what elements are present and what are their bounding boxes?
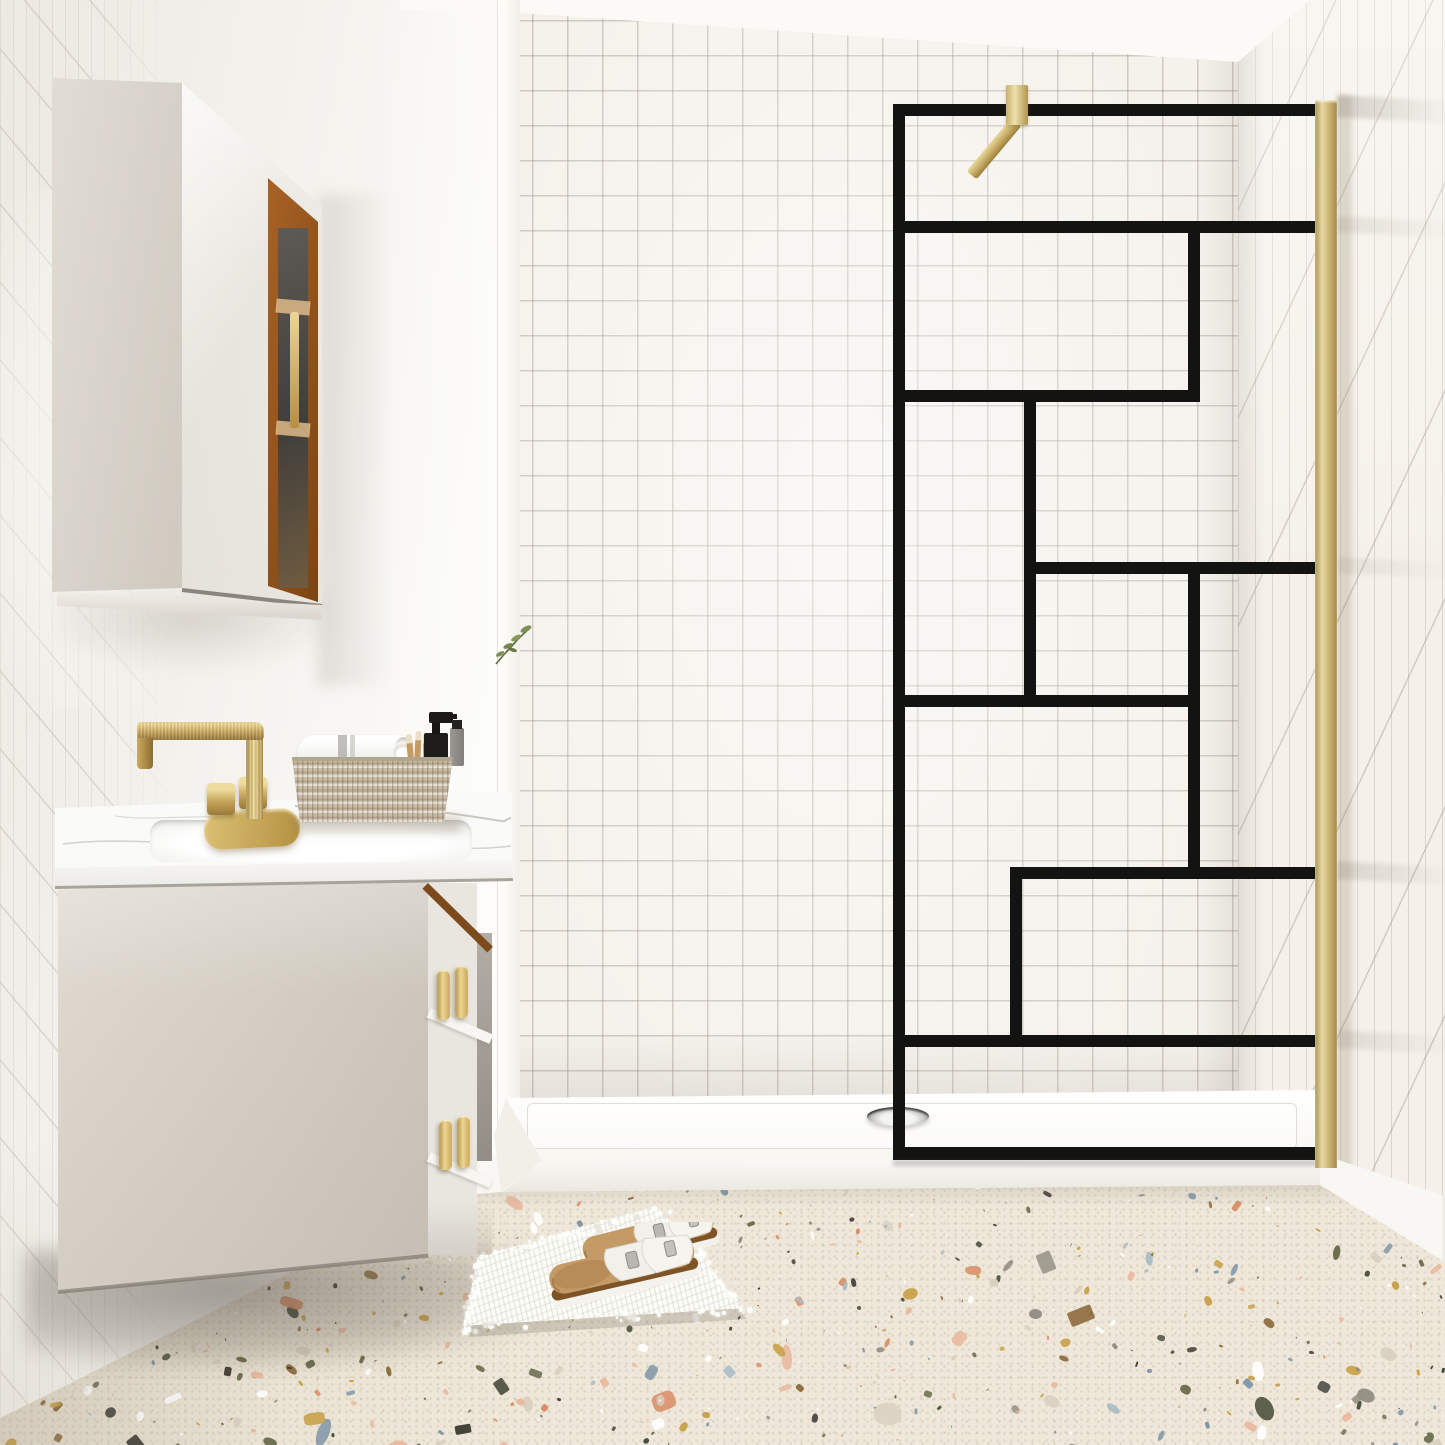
terrazzo-chip [1051, 1382, 1058, 1388]
terrazzo-chip [1277, 1302, 1280, 1306]
mat-tuft [501, 1249, 505, 1253]
drawer-recess [477, 933, 492, 1161]
terrazzo-chip [1257, 1425, 1268, 1440]
terrazzo-chip [940, 1295, 943, 1299]
terrazzo-chip [923, 1390, 932, 1398]
terrazzo-chip [668, 1442, 670, 1445]
terrazzo-chip [1067, 1304, 1095, 1327]
terrazzo-chip [1054, 1430, 1056, 1433]
terrazzo-chip [884, 1224, 887, 1228]
frame-bottom [893, 1147, 1317, 1160]
terrazzo-chip [1156, 1334, 1165, 1341]
terrazzo-chip [1226, 1410, 1232, 1415]
terrazzo-chip [1083, 1286, 1090, 1295]
terrazzo-chip [952, 1392, 956, 1398]
terrazzo-chip [1219, 1387, 1221, 1389]
terrazzo-chip [1334, 1403, 1343, 1409]
terrazzo-chip [822, 1433, 826, 1438]
terrazzo-chip [1058, 1276, 1060, 1278]
terrazzo-chip [1119, 1253, 1124, 1257]
terrazzo-chip [861, 1347, 865, 1352]
terrazzo-chip [442, 1389, 448, 1396]
vanity-sheen [58, 878, 428, 1294]
mat-tuft [657, 1211, 662, 1216]
terrazzo-chip [1400, 1256, 1402, 1259]
terrazzo-chip [1397, 1409, 1404, 1417]
terrazzo-chip [493, 1377, 510, 1395]
mat-tuft [739, 1307, 743, 1311]
terrazzo-chip [638, 1344, 648, 1352]
terrazzo-chip [765, 1415, 770, 1420]
terrazzo-chip [510, 1402, 515, 1407]
terrazzo-chip [1430, 1365, 1434, 1369]
terrazzo-chip [976, 1274, 981, 1279]
terrazzo-chip [1340, 1428, 1347, 1435]
vanity-front [58, 878, 428, 1294]
terrazzo-chip [1275, 1383, 1281, 1386]
terrazzo-chip [983, 1209, 985, 1211]
terrazzo-chip [855, 1228, 860, 1234]
terrazzo-chip [554, 1365, 564, 1376]
terrazzo-chip [775, 1234, 780, 1240]
terrazzo-chip [902, 1286, 919, 1301]
terrazzo-chip [1250, 1325, 1252, 1327]
terrazzo-chip [875, 1373, 879, 1378]
terrazzo-chip [817, 1227, 821, 1231]
terrazzo-chip [822, 1329, 824, 1331]
terrazzo-chip [599, 1377, 610, 1388]
terrazzo-chip [1239, 1287, 1246, 1292]
terrazzo-chip [1184, 1314, 1186, 1318]
terrazzo-chip [706, 1422, 710, 1426]
terrazzo-chip [611, 1426, 617, 1432]
terrazzo-chip [795, 1383, 805, 1392]
terrazzo-chip [591, 1380, 596, 1386]
terrazzo-chip [915, 1408, 918, 1414]
terrazzo-chip [764, 1237, 767, 1240]
soap-pump-neck [432, 722, 440, 734]
terrazzo-chip [1052, 1308, 1054, 1311]
terrazzo-chip [883, 1338, 891, 1349]
brass-support-clamp [1006, 85, 1028, 125]
terrazzo-chip [904, 1306, 913, 1315]
terrazzo-chip [454, 1424, 471, 1435]
terrazzo-chip [955, 1257, 960, 1261]
cabinet-open-shelf [268, 170, 318, 606]
rattan-basket [292, 757, 453, 822]
terrazzo-chip [1295, 1336, 1297, 1338]
terrazzo-chip [1229, 1263, 1239, 1277]
terrazzo-chip [642, 1438, 650, 1445]
frame-left [893, 104, 905, 1160]
mat-tuft [472, 1294, 477, 1299]
mat-tuft [464, 1320, 467, 1323]
terrazzo-chip [1077, 1254, 1081, 1257]
terrazzo-chip [1236, 1379, 1239, 1384]
terrazzo-chip [937, 1405, 943, 1411]
terrazzo-chip [1040, 1393, 1045, 1398]
terrazzo-chip [1047, 1335, 1049, 1339]
terrazzo-chip [722, 1365, 736, 1379]
terrazzo-chip [849, 1217, 855, 1222]
frame-tray-shadow [893, 1160, 1317, 1166]
terrazzo-chip [771, 1329, 775, 1333]
terrazzo-chip [1442, 1368, 1445, 1373]
terrazzo-chip [1421, 1312, 1423, 1314]
terrazzo-chip [1026, 1206, 1031, 1214]
terrazzo-chip [903, 1379, 906, 1381]
soap-pump-nozzle [450, 714, 457, 719]
grid-bar-h3 [893, 390, 1200, 402]
terrazzo-chip [909, 1213, 913, 1217]
terrazzo-chip [986, 1389, 989, 1391]
terrazzo-chip [872, 1380, 876, 1384]
terrazzo-chip [1127, 1270, 1136, 1280]
terrazzo-chip [493, 1417, 498, 1422]
terrazzo-chip [1402, 1263, 1407, 1267]
terrazzo-chip [1179, 1383, 1193, 1395]
terrazzo-chip [811, 1231, 815, 1239]
terrazzo-chip [1027, 1259, 1031, 1262]
terrazzo-chip [966, 1295, 974, 1304]
terrazzo-chip [1309, 1350, 1314, 1354]
corner-reveal [497, 0, 520, 1198]
terrazzo-chip [910, 1373, 913, 1375]
bar-reflection-streak [1337, 1030, 1445, 1054]
mat-tuft [467, 1328, 472, 1333]
terrazzo-chip [757, 1305, 759, 1307]
terrazzo-chip [650, 1417, 665, 1431]
terrazzo-chip [785, 1222, 788, 1225]
terrazzo-chip [785, 1339, 787, 1342]
terrazzo-chip [856, 1253, 859, 1255]
terrazzo-chip [1188, 1441, 1192, 1444]
terrazzo-chip [920, 1395, 923, 1398]
mat-tuft [635, 1214, 641, 1220]
terrazzo-chip [1356, 1367, 1359, 1371]
glass-panel [893, 104, 1317, 1162]
terrazzo-chip [1383, 1243, 1393, 1254]
terrazzo-chip [846, 1365, 852, 1369]
terrazzo-chip [1135, 1361, 1139, 1367]
mat-tuft [477, 1283, 480, 1286]
terrazzo-chip [702, 1412, 710, 1418]
mat-tuft [477, 1277, 480, 1280]
terrazzo-chip [950, 1330, 969, 1349]
terrazzo-chip [904, 1281, 907, 1284]
cabinet-handle [290, 312, 299, 428]
terrazzo-chip [1430, 1264, 1443, 1275]
terrazzo-chip [779, 1275, 782, 1276]
terrazzo-chip [1299, 1276, 1303, 1280]
mat-tuft [747, 1307, 753, 1313]
terrazzo-chip [1386, 1283, 1391, 1287]
sandals [515, 1222, 735, 1340]
terrazzo-chip [909, 1340, 914, 1346]
terrazzo-chip [540, 1414, 543, 1417]
bar-reflection-streak [1337, 216, 1445, 238]
drawer-pull [439, 1120, 452, 1170]
terrazzo-chip [790, 1259, 796, 1266]
grid-bar-h4 [1024, 562, 1317, 574]
mat-tuft [626, 1214, 629, 1217]
terrazzo-chip [944, 1233, 947, 1236]
terrazzo-chip [1218, 1344, 1222, 1347]
terrazzo-chip [895, 1395, 897, 1398]
terrazzo-chip [999, 1346, 1004, 1351]
terrazzo-chip [1179, 1362, 1181, 1364]
terrazzo-chip [1370, 1441, 1374, 1445]
terrazzo-chip [811, 1413, 818, 1423]
terrazzo-chip [843, 1281, 849, 1291]
terrazzo-chip [1336, 1341, 1339, 1344]
terrazzo-chip [601, 1409, 604, 1414]
terrazzo-chip [1332, 1244, 1342, 1260]
terrazzo-chip [1426, 1420, 1429, 1422]
terrazzo-chip [1069, 1243, 1072, 1247]
terrazzo-chip [1410, 1344, 1413, 1348]
terrazzo-chip [1413, 1294, 1416, 1297]
terrazzo-chip [871, 1401, 903, 1428]
terrazzo-chip [1306, 1341, 1309, 1345]
terrazzo-chip [1202, 1407, 1206, 1412]
terrazzo-chip [632, 1362, 637, 1366]
terrazzo-chip [889, 1315, 892, 1319]
terrazzo-chip [1315, 1228, 1321, 1233]
terrazzo-chip [797, 1360, 800, 1363]
terrazzo-chip [498, 1440, 513, 1445]
terrazzo-chip [695, 1375, 697, 1377]
terrazzo-chip [841, 1434, 843, 1437]
terrazzo-chip [778, 1383, 792, 1393]
terrazzo-chip [1195, 1268, 1198, 1272]
terrazzo-chip [1213, 1259, 1224, 1269]
terrazzo-chip [1094, 1326, 1104, 1334]
grid-bar-v2 [1024, 390, 1036, 707]
grid-bar-h7 [893, 1035, 1317, 1047]
terrazzo-chip [850, 1278, 857, 1288]
terrazzo-chip [951, 1425, 953, 1428]
basket-rim [292, 757, 453, 761]
terrazzo-chip [1247, 1305, 1255, 1310]
terrazzo-chip [1139, 1234, 1141, 1235]
terrazzo-chip [975, 1241, 983, 1248]
terrazzo-chip [1288, 1357, 1294, 1362]
terrazzo-chip [1338, 1316, 1344, 1321]
terrazzo-chip [885, 1275, 889, 1278]
terrazzo-chip [659, 1399, 662, 1401]
terrazzo-chip [1168, 1265, 1171, 1268]
terrazzo-chip [1074, 1285, 1083, 1296]
terrazzo-chip [557, 1397, 561, 1401]
cabinet-side-panel [52, 78, 182, 592]
terrazzo-chip [1147, 1369, 1152, 1373]
terrazzo-chip [1370, 1251, 1383, 1264]
terrazzo-chip [786, 1250, 789, 1253]
terrazzo-chip [1028, 1309, 1042, 1320]
terrazzo-chip [643, 1363, 659, 1381]
terrazzo-chip [1363, 1270, 1370, 1278]
terrazzo-chip [1317, 1380, 1332, 1394]
terrazzo-chip [1084, 1405, 1087, 1407]
grid-bar-h2 [893, 221, 1317, 233]
mat-tuft [620, 1217, 624, 1221]
terrazzo-chip [1043, 1394, 1062, 1410]
terrazzo-chip [1418, 1259, 1424, 1267]
profile-cast-shadow [1337, 95, 1352, 1173]
frame-top [893, 104, 1317, 116]
terrazzo-chip [860, 1384, 863, 1386]
terrazzo-chip [898, 1223, 901, 1229]
mat-tuft [473, 1266, 476, 1269]
terrazzo-chip [1122, 1242, 1129, 1249]
terrazzo-chip [939, 1249, 944, 1255]
faucet-handle-left [207, 783, 235, 815]
terrazzo-chip [1123, 1434, 1125, 1437]
terrazzo-chip [437, 1430, 443, 1436]
terrazzo-chip [972, 1352, 977, 1358]
faucet-riser [246, 729, 263, 819]
terrazzo-chip [950, 1355, 956, 1361]
terrazzo-chip [1336, 1213, 1338, 1215]
terrazzo-chip [1265, 1206, 1272, 1213]
terrazzo-chip [692, 1393, 694, 1396]
terrazzo-chip [1249, 1411, 1254, 1416]
terrazzo-chip [1204, 1421, 1210, 1429]
terrazzo-chip [678, 1420, 689, 1432]
terrazzo-chip [1035, 1250, 1056, 1274]
terrazzo-chip [831, 1242, 835, 1246]
terrazzo-chip [1077, 1246, 1082, 1251]
terrazzo-chip [965, 1266, 981, 1275]
terrazzo-chip [1130, 1350, 1133, 1352]
terrazzo-chip [809, 1221, 812, 1224]
mat-tuft [511, 1247, 514, 1250]
terrazzo-chip [876, 1346, 884, 1352]
lotion-bottle-cap [452, 720, 462, 729]
terrazzo-chip [927, 1358, 930, 1361]
terrazzo-chip [1322, 1354, 1325, 1359]
mat-tuft [468, 1295, 471, 1298]
terrazzo-chip [1058, 1354, 1069, 1362]
terrazzo-chip [758, 1288, 760, 1290]
bar-reflection-streak [1336, 95, 1445, 123]
terrazzo-chip [1187, 1346, 1198, 1353]
terrazzo-chip [1109, 1319, 1117, 1327]
mat-tuft [668, 1210, 672, 1214]
terrazzo-chip [890, 1368, 896, 1372]
terrazzo-chip [838, 1331, 840, 1333]
terrazzo-chip [1251, 1393, 1278, 1423]
terrazzo-chip [816, 1408, 820, 1412]
mat-tuft [477, 1261, 482, 1266]
terrazzo-chip [935, 1322, 938, 1325]
terrazzo-chip [1001, 1259, 1014, 1273]
terrazzo-chip [857, 1239, 862, 1243]
drawer-pull [455, 966, 468, 1018]
terrazzo-chip [736, 1417, 740, 1421]
faucet-spout [137, 722, 264, 740]
terrazzo-chip [1171, 1350, 1175, 1354]
drawer-pull [457, 1116, 470, 1168]
terrazzo-chip [1275, 1225, 1278, 1228]
terrazzo-chip [1069, 1432, 1073, 1436]
terrazzo-chip [1414, 1421, 1419, 1427]
terrazzo-chip [639, 1421, 645, 1424]
terrazzo-chip [1262, 1316, 1276, 1330]
mat-tuft [497, 1323, 500, 1326]
terrazzo-chip [1202, 1295, 1213, 1307]
terrazzo-chip [1032, 1294, 1035, 1298]
terrazzo-chip [1178, 1405, 1181, 1408]
terrazzo-chip [705, 1354, 713, 1363]
terrazzo-chip [779, 1212, 782, 1215]
terrazzo-chip [1112, 1343, 1119, 1350]
drawer-pull [437, 970, 450, 1020]
terrazzo-chip [707, 1407, 710, 1410]
terrazzo-chip [1243, 1420, 1258, 1433]
terrazzo-chip [1433, 1406, 1436, 1410]
terrazzo-chip [651, 1431, 655, 1435]
terrazzo-chip [1156, 1430, 1165, 1442]
mat-tuft [463, 1305, 467, 1309]
terrazzo-chip [881, 1219, 895, 1233]
vanity-drawer-column [428, 875, 492, 1255]
grid-bar-v3 [1188, 562, 1200, 879]
terrazzo-chip [719, 1356, 722, 1359]
terrazzo-chip [957, 1298, 962, 1304]
terrazzo-chip [1416, 1369, 1420, 1376]
terrazzo-chip [896, 1439, 899, 1441]
terrazzo-chip [1341, 1411, 1353, 1422]
terrazzo-chip [1213, 1271, 1218, 1274]
terrazzo-chip [1143, 1268, 1148, 1273]
terrazzo-chip [757, 1342, 759, 1344]
terrazzo-chip [1346, 1365, 1362, 1376]
terrazzo-chip [755, 1363, 762, 1369]
terrazzo-chip [882, 1329, 886, 1331]
grid-bar-h6 [1010, 867, 1317, 879]
terrazzo-chip [540, 1403, 549, 1412]
brass-wall-profile [1315, 100, 1337, 1168]
plant-sprig [486, 612, 538, 676]
bar-reflection-streak [1337, 557, 1445, 579]
terrazzo-chip [782, 1319, 790, 1326]
faucet-spout-tip [137, 738, 153, 769]
mat-tuft [638, 1212, 641, 1215]
terrazzo-chip [468, 1409, 472, 1413]
mat-tuft [662, 1213, 667, 1218]
terrazzo-chip [1439, 1295, 1443, 1299]
grid-bar-v1 [1188, 221, 1200, 402]
terrazzo-chip [1391, 1280, 1401, 1291]
terrazzo-chip [1382, 1414, 1388, 1420]
mat-tuft [493, 1250, 498, 1255]
terrazzo-chip [1423, 1281, 1428, 1286]
terrazzo-chip [1226, 1277, 1235, 1285]
terrazzo-chip [1295, 1398, 1300, 1401]
terrazzo-chip [856, 1306, 861, 1310]
terrazzo-chip [436, 1440, 446, 1445]
grid-bar-v4 [1010, 867, 1022, 1047]
basket-weave-texture [292, 757, 453, 822]
terrazzo-chip [1405, 1286, 1409, 1291]
bar-reflection-streak [1337, 861, 1445, 885]
terrazzo-chip [537, 1419, 540, 1422]
terrazzo-chip [1360, 1307, 1363, 1310]
grid-bar-h5 [893, 695, 1200, 707]
terrazzo-chip [992, 1223, 996, 1226]
